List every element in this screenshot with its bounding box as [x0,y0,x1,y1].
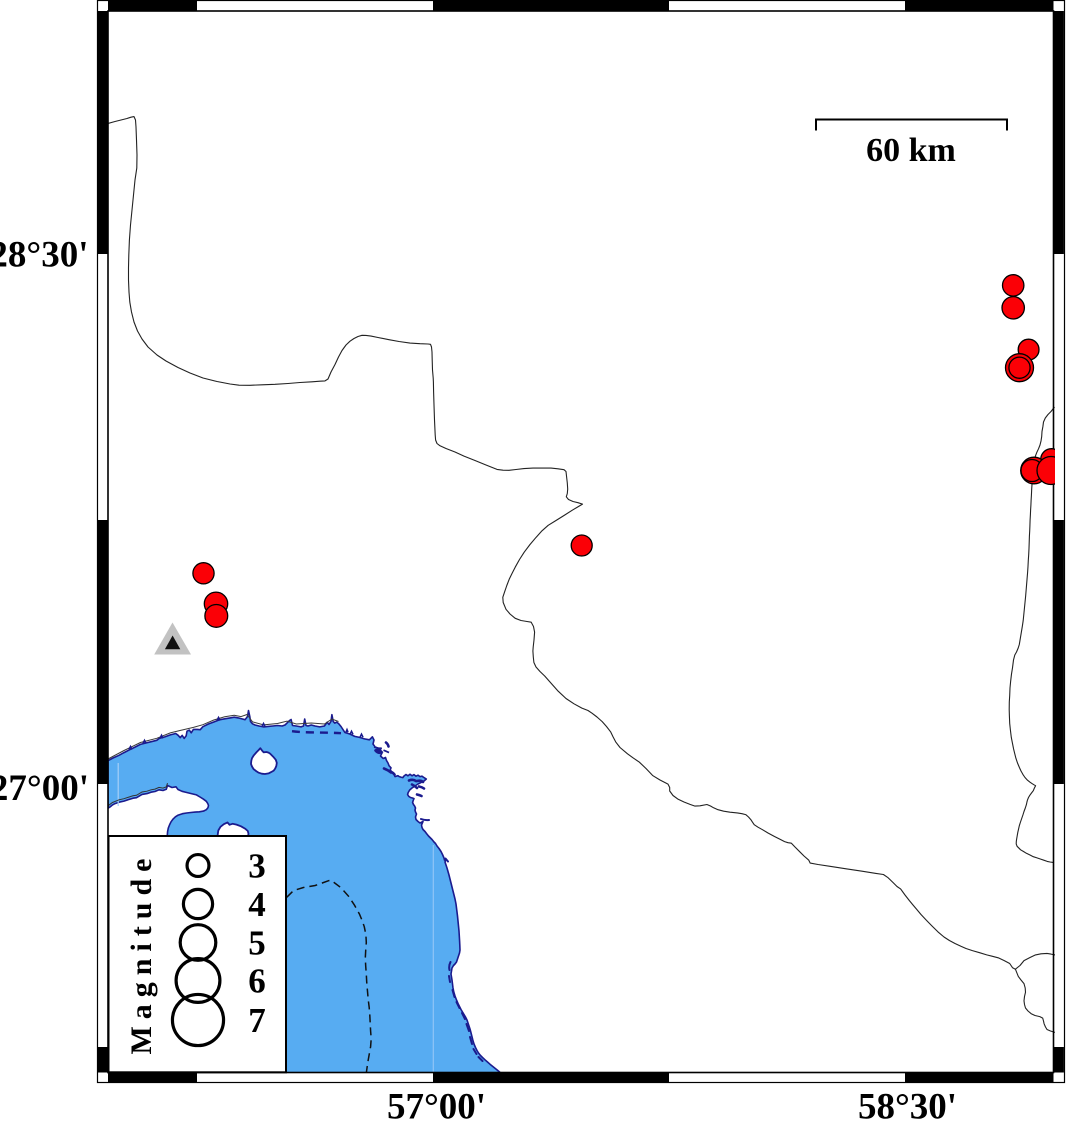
svg-text:3: 3 [248,847,266,886]
svg-text:7: 7 [248,1001,266,1040]
svg-text:4: 4 [248,885,266,924]
svg-text:60 km: 60 km [866,132,956,169]
svg-text:28°30': 28°30' [0,235,89,276]
svg-text:57°00': 57°00' [387,1087,486,1121]
svg-text:6: 6 [248,962,266,1001]
svg-text:Magnitude: Magnitude [125,851,158,1054]
svg-text:58°30': 58°30' [858,1087,957,1121]
svg-text:27°00': 27°00' [0,768,89,809]
svg-text:5: 5 [248,924,266,963]
